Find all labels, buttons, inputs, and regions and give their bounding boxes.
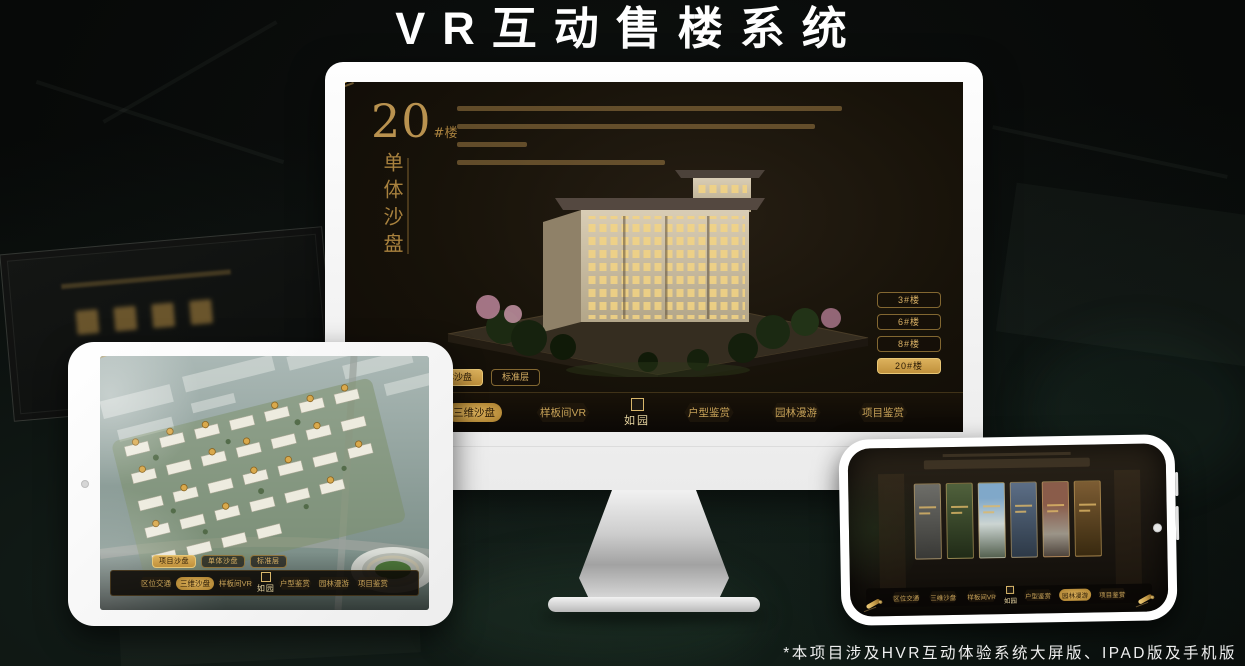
footnote: *本项目涉及HVR互动体验系统大屏版、IPAD版及手机版	[783, 641, 1237, 663]
gallery-panel[interactable]	[978, 482, 1006, 558]
gallery-panels	[914, 480, 1102, 559]
brand-logo-text: 如园	[257, 583, 275, 594]
tablet-tabs: 项目沙盘 单体沙盘 标准层	[152, 555, 287, 568]
phone-frame: 区位交通 三维沙盘 样板间VR 如园 户型鉴赏 园林漫游 项目鉴赏	[838, 434, 1177, 626]
nav-project-view[interactable]: 项目鉴赏	[1096, 587, 1128, 600]
brand-seal-icon	[261, 572, 271, 582]
nav-location-traffic[interactable]: 区位交通	[137, 577, 175, 590]
nav-3d-sandtable[interactable]: 三维沙盘	[927, 590, 959, 603]
brand-logo: 如园	[257, 572, 275, 594]
gallery-panel[interactable]	[1074, 480, 1102, 556]
phone-screen: 区位交通 三维沙盘 样板间VR 如园 户型鉴赏 园林漫游 项目鉴赏	[848, 443, 1169, 617]
phone-device: 区位交通 三维沙盘 样板间VR 如园 户型鉴赏 园林漫游 项目鉴赏	[838, 434, 1177, 626]
nav-3d-sandtable[interactable]: 三维沙盘	[446, 403, 502, 422]
tab-standard-floor[interactable]: 标准层	[250, 555, 287, 568]
scene-beam	[943, 452, 1070, 457]
monitor-stand-neck	[579, 490, 729, 600]
building-button-3[interactable]: 3#楼	[877, 292, 941, 308]
building-button-8[interactable]: 8#楼	[877, 336, 941, 352]
scene-doorframe	[1114, 470, 1142, 590]
phone-side-button	[1176, 506, 1180, 540]
brand-seal-icon	[1006, 586, 1014, 594]
page-title: VR互动售楼系统	[0, 0, 1245, 58]
screen-heading: 20#楼	[371, 98, 457, 144]
nav-project-view[interactable]: 项目鉴赏	[855, 403, 911, 422]
scroll-ornament-icon	[345, 82, 363, 88]
poster: VR互动售楼系统 20#楼 单体沙盘	[0, 0, 1245, 666]
building-number-suffix: #楼	[434, 126, 458, 141]
vertical-heading-subtitle	[407, 158, 409, 254]
gallery-panel[interactable]	[1010, 481, 1038, 557]
phone-side-button	[1175, 472, 1178, 496]
building-number: 20	[371, 94, 432, 148]
nav-garden-roam[interactable]: 园林漫游	[768, 403, 824, 422]
tab-standard-floor[interactable]: 标准层	[491, 369, 540, 386]
nav-garden-roam[interactable]: 园林漫游	[1059, 588, 1091, 601]
tablet-camera-icon	[81, 480, 89, 488]
monitor-stand-base	[548, 597, 760, 612]
nav-floorplan-view[interactable]: 户型鉴赏	[1022, 589, 1054, 602]
phone-camera-icon	[1153, 523, 1162, 532]
nav-garden-roam[interactable]: 园林漫游	[315, 577, 353, 590]
building-selector: 3#楼 6#楼 8#楼 20#楼	[877, 292, 941, 374]
tab-project-sandtable[interactable]: 项目沙盘	[152, 555, 196, 568]
nav-floorplan-view[interactable]: 户型鉴赏	[681, 403, 737, 422]
building-button-6[interactable]: 6#楼	[877, 314, 941, 330]
scene-doorframe	[878, 474, 906, 594]
brand-logo-text: 如园	[624, 412, 650, 428]
tablet-screen: 项目沙盘 单体沙盘 标准层 区位交通 三维沙盘 样板间VR 如园 户型鉴赏 园林…	[100, 356, 429, 610]
scene-beam	[924, 458, 1089, 470]
building-render	[443, 142, 873, 377]
nav-model-room-vr[interactable]: 样板间VR	[533, 403, 593, 422]
nav-model-room-vr[interactable]: 样板间VR	[964, 590, 999, 603]
vertical-heading: 单体沙盘	[378, 152, 407, 292]
nav-project-view[interactable]: 项目鉴赏	[354, 577, 392, 590]
brand-seal-icon	[631, 398, 644, 411]
building-button-20[interactable]: 20#楼	[877, 358, 941, 374]
phone-navbar: 区位交通 三维沙盘 样板间VR 如园 户型鉴赏 园林漫游 项目鉴赏	[866, 583, 1152, 607]
nav-location-traffic[interactable]: 区位交通	[890, 591, 922, 604]
gallery-panel[interactable]	[1042, 481, 1070, 557]
nav-model-room-vr[interactable]: 样板间VR	[215, 577, 256, 590]
tab-single-sandtable[interactable]: 单体沙盘	[201, 555, 245, 568]
gallery-panel[interactable]	[914, 483, 942, 559]
gallery-panel[interactable]	[946, 483, 974, 559]
nav-floorplan-view[interactable]: 户型鉴赏	[276, 577, 314, 590]
bg-road-line	[36, 80, 285, 164]
tablet-navbar: 区位交通 三维沙盘 样板间VR 如园 户型鉴赏 园林漫游 项目鉴赏	[110, 570, 419, 596]
nav-3d-sandtable[interactable]: 三维沙盘	[176, 577, 214, 590]
bg-road-line	[992, 125, 1228, 179]
brand-logo-text: 如园	[1004, 595, 1017, 605]
brand-logo: 如园	[1004, 586, 1017, 605]
brand-logo: 如园	[624, 398, 650, 428]
